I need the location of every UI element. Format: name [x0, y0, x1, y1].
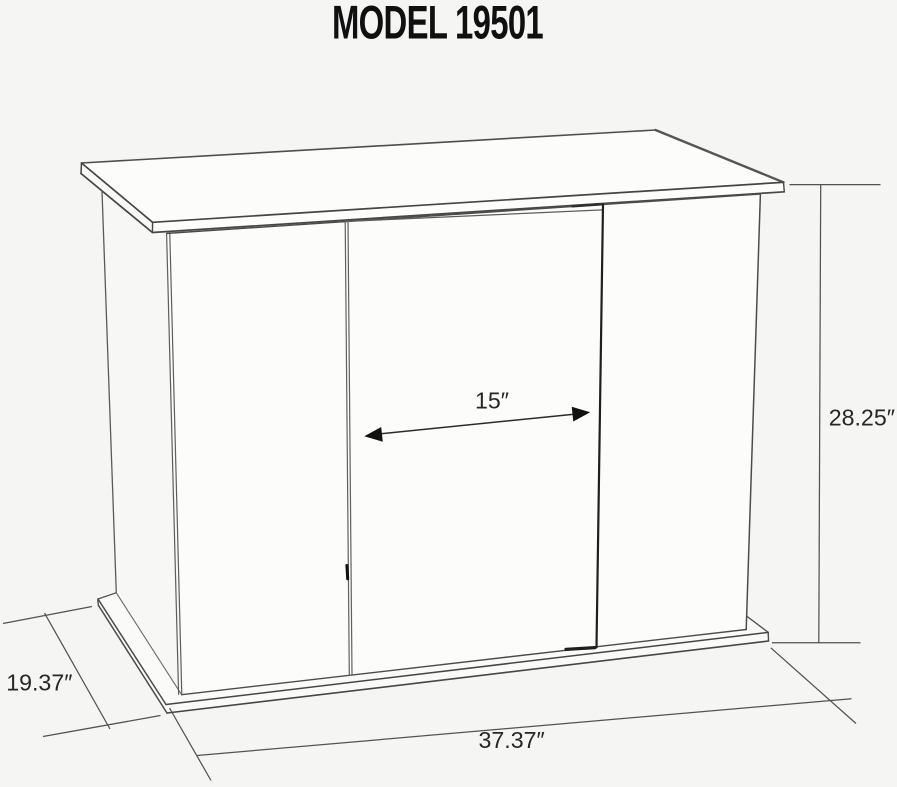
svg-text:19.37″: 19.37″ [6, 670, 72, 696]
svg-text:28.25″: 28.25″ [829, 405, 895, 431]
svg-text:MODEL 19501: MODEL 19501 [332, 0, 543, 50]
svg-text:15″: 15″ [475, 388, 509, 414]
svg-text:37.37″: 37.37″ [479, 727, 545, 753]
